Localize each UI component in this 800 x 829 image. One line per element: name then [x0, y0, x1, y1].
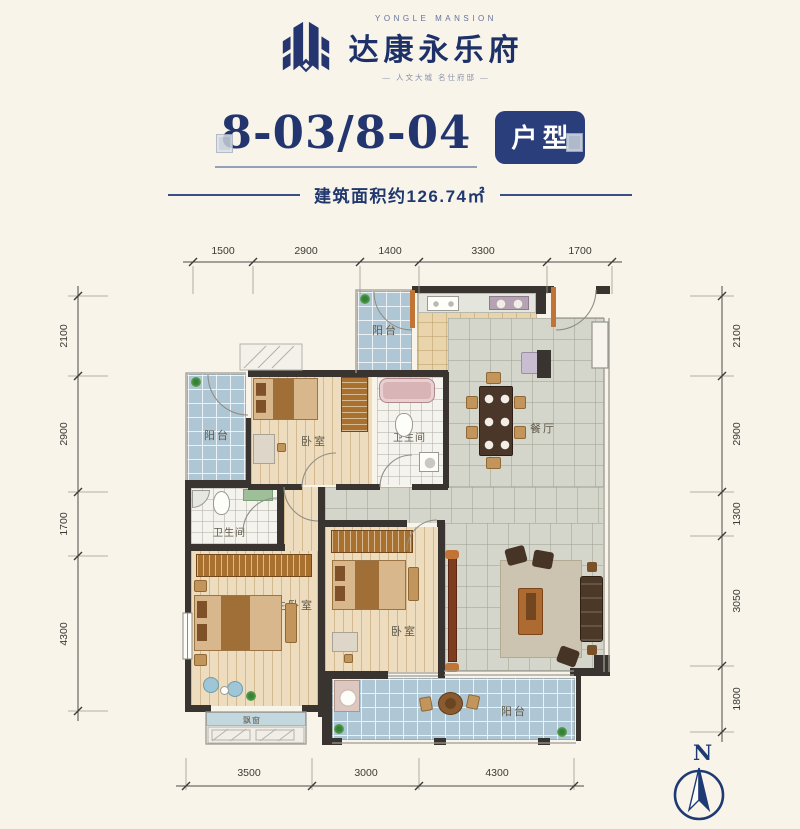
dim-label-right: 2900: [731, 422, 743, 445]
room-label: 阳台: [204, 427, 230, 443]
plant-icon: [557, 727, 567, 737]
room-label: 飘窗: [243, 715, 261, 726]
plant-icon: [360, 294, 370, 304]
room-label: 阳台: [372, 322, 398, 338]
desk-bedroom1: [253, 434, 275, 464]
side-table: [587, 645, 597, 655]
plant-icon: [246, 691, 256, 701]
desk-chair: [277, 443, 286, 452]
bedroom-bench: [408, 567, 419, 601]
washbasin-bath2: [243, 489, 273, 501]
dining-chair: [466, 396, 478, 409]
side-table: [587, 562, 597, 572]
dining-chair: [486, 372, 501, 384]
dining-chair: [486, 457, 501, 469]
dim-label-left: 1700: [58, 512, 70, 535]
toilet-bath1: [395, 413, 413, 437]
washbasin-bath1: [419, 452, 439, 472]
room-hallway: [325, 487, 603, 523]
leisure-chair: [203, 677, 219, 693]
kitchen-sink: [427, 296, 459, 311]
room-label: 餐厅: [530, 420, 556, 436]
dim-label-top: 1400: [378, 245, 401, 257]
north-compass: N: [652, 742, 748, 828]
dim-label-top: 1700: [568, 245, 591, 257]
bed-master: [194, 595, 282, 651]
room-master-entry-nook: [284, 487, 318, 551]
dim-label-top: 2900: [294, 245, 317, 257]
wardrobe-bedroom1: [341, 377, 368, 432]
tv-console-cap: [445, 550, 459, 559]
toilet-bath2: [213, 491, 230, 515]
room-label: 卧室: [391, 623, 417, 639]
dim-label-bottom: 3500: [237, 767, 260, 779]
dim-label-left: 2900: [58, 422, 70, 445]
desk-chair: [344, 654, 353, 663]
dim-label-top: 1500: [211, 245, 234, 257]
room-label: 卧室: [301, 433, 327, 449]
coffee-table: [518, 588, 543, 635]
dim-label-top: 3300: [471, 245, 494, 257]
room-balcony-left: 阳台: [187, 374, 246, 481]
bed-bedroom1: [253, 378, 318, 420]
nightstand: [194, 654, 207, 666]
dim-label-left: 4300: [58, 622, 70, 645]
dim-label-left: 2100: [58, 324, 70, 347]
armchair: [532, 549, 555, 569]
side-table: [220, 686, 229, 695]
dim-label-bottom: 3000: [354, 767, 377, 779]
wardrobe-bedroom2: [331, 530, 413, 553]
plant-icon: [334, 724, 344, 734]
dim-label-right: 1300: [731, 502, 743, 525]
desk-bedroom2: [332, 632, 358, 652]
leisure-chair: [227, 681, 243, 697]
sofa: [580, 576, 603, 642]
fridge: [521, 352, 540, 374]
balcony-table: [438, 692, 463, 715]
dining-table: [479, 386, 513, 456]
kitchen-stove: [489, 296, 529, 310]
room-label: 阳台: [501, 703, 527, 719]
room-bay-window: 飘窗: [206, 712, 306, 726]
tv-console-cap: [445, 663, 459, 672]
floorplan-page: { "header": { "brand_en": "YONGLE MANSIO…: [0, 0, 800, 829]
dim-label-right: 1800: [731, 687, 743, 710]
washing-machine: [334, 680, 360, 712]
north-label: N: [693, 742, 712, 765]
wardrobe-master: [196, 554, 312, 577]
dim-label-right: 2100: [731, 324, 743, 347]
bedroom-bench: [285, 603, 297, 643]
dim-label-right: 3050: [731, 589, 743, 612]
dining-chair: [466, 426, 478, 439]
dining-chair: [514, 426, 526, 439]
nightstand: [194, 580, 207, 592]
floor-plan: 阳台 厨房 餐厅 客厅 阳台 卧室 卫生间 卫生间 主卧室 飘窗 卧室 阳台: [0, 0, 800, 829]
room-label: 卫生间: [213, 524, 246, 539]
dining-chair: [514, 396, 526, 409]
balcony-chair: [419, 696, 433, 712]
bed-bedroom2: [332, 560, 406, 610]
plant-icon: [191, 377, 201, 387]
dim-label-bottom: 4300: [485, 767, 508, 779]
bathtub: [379, 378, 435, 403]
tv-console: [448, 556, 457, 662]
